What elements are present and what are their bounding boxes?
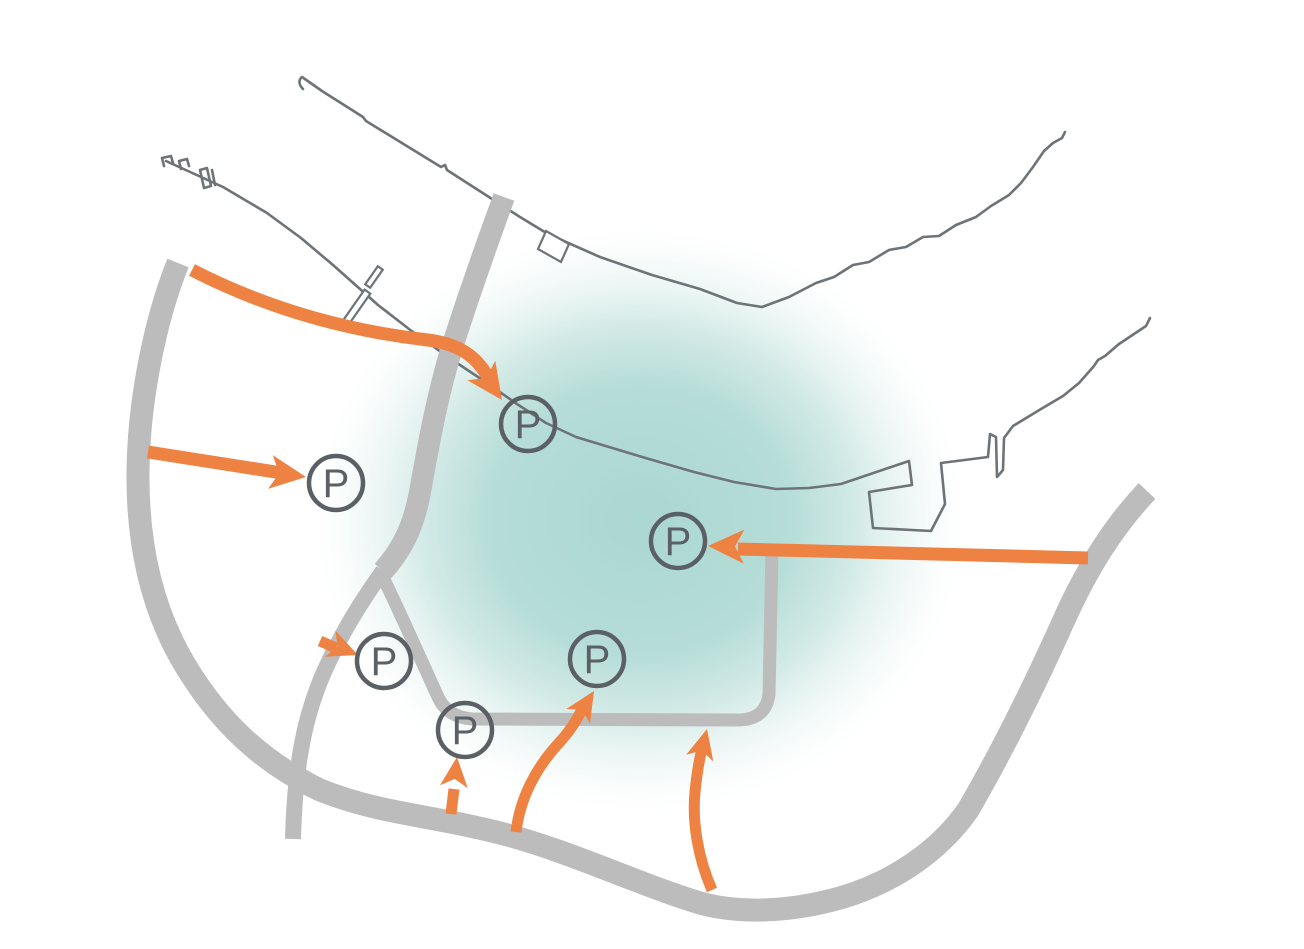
map-canvas: PPPPPP xyxy=(0,0,1304,949)
parking-letter: P xyxy=(515,403,542,447)
map-stage: PPPPPP xyxy=(0,0,1304,949)
parking-letter: P xyxy=(452,709,479,753)
pier-icon xyxy=(342,266,383,326)
parking-letter: P xyxy=(584,638,611,682)
access-arrow-west xyxy=(148,452,308,494)
parking-letter: P xyxy=(371,640,398,684)
parking-letter: P xyxy=(665,520,692,564)
parking-letter: P xyxy=(323,462,350,506)
